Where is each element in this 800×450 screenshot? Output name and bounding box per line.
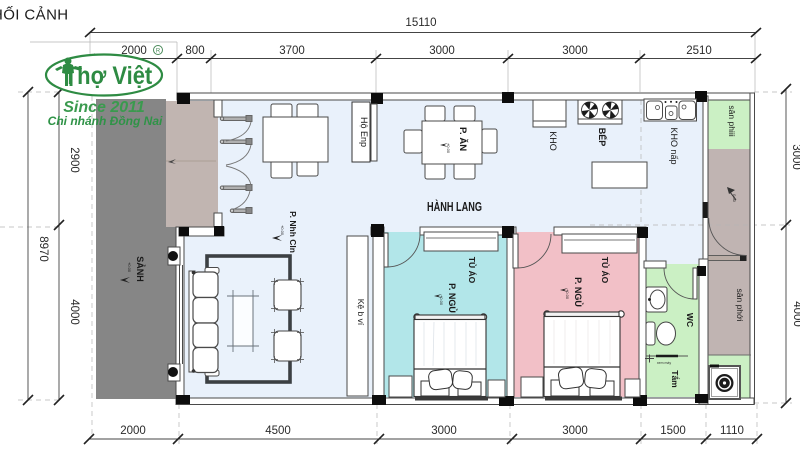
svg-text:xem máy: xem máy (657, 361, 671, 365)
svg-text:2900: 2900 (68, 147, 80, 173)
svg-text:8970: 8970 (37, 236, 49, 262)
svg-text:1500: 1500 (660, 425, 686, 437)
svg-text:1110: 1110 (720, 425, 744, 437)
svg-text:+0.00: +0.00 (280, 225, 285, 236)
svg-text:HỐI CẢNH: HỐI CẢNH (0, 6, 69, 24)
svg-text:4000: 4000 (791, 301, 800, 327)
svg-text:15110: 15110 (405, 17, 436, 29)
svg-text:3000: 3000 (429, 45, 455, 57)
svg-text:TỦ ÁO: TỦ ÁO (600, 257, 611, 284)
svg-text:KHO: KHO (548, 131, 558, 151)
svg-text:+0.00: +0.00 (446, 143, 451, 154)
svg-text:4500: 4500 (265, 425, 291, 437)
svg-text:3000: 3000 (562, 45, 588, 57)
svg-text:+0.00: +0.00 (439, 295, 444, 306)
svg-text:P. ĂN: P. ĂN (457, 127, 468, 151)
svg-text:Tắm: Tắm (670, 370, 681, 388)
svg-text:sân phiii: sân phiii (727, 105, 737, 136)
svg-text:Kệ b ví: Kệ b ví (356, 299, 366, 326)
svg-text:WC: WC (685, 313, 695, 327)
svg-text:Chi nhánh Đồng Nai: Chi nhánh Đồng Nai (48, 114, 163, 128)
svg-text:3700: 3700 (279, 45, 305, 57)
svg-text:+0.00: +0.00 (127, 262, 132, 273)
svg-text:P. NGỦ: P. NGỦ (447, 283, 458, 313)
svg-text:SẢNH: SẢNH (135, 256, 146, 282)
svg-text:Thợ Việt: Thợ Việt (64, 62, 153, 90)
svg-text:BẾP: BẾP (597, 128, 607, 147)
svg-text:sân phới: sân phới (735, 289, 745, 322)
svg-text:Hộ Enp: Hộ Enp (359, 117, 369, 147)
svg-text:3000: 3000 (562, 425, 588, 437)
svg-text:4000: 4000 (68, 299, 80, 325)
svg-text:+0.00: +0.00 (565, 289, 570, 300)
svg-text:0.00: 0.00 (732, 194, 737, 203)
svg-text:800: 800 (185, 45, 204, 57)
svg-text:3000: 3000 (431, 425, 457, 437)
svg-text:2000: 2000 (120, 425, 146, 437)
svg-text:2510: 2510 (686, 45, 712, 57)
svg-text:TỦ ÁO: TỦ ÁO (467, 257, 478, 284)
svg-text:3000: 3000 (790, 144, 800, 170)
svg-text:P. NGỦ: P. NGỦ (573, 277, 584, 307)
svg-text:P. Nhh Cln: P. Nhh Cln (288, 211, 298, 253)
svg-text:R: R (156, 49, 161, 55)
svg-text:HÀNH LANG: HÀNH LANG (427, 199, 482, 214)
svg-text:KHO nấp: KHO nấp (669, 127, 679, 164)
